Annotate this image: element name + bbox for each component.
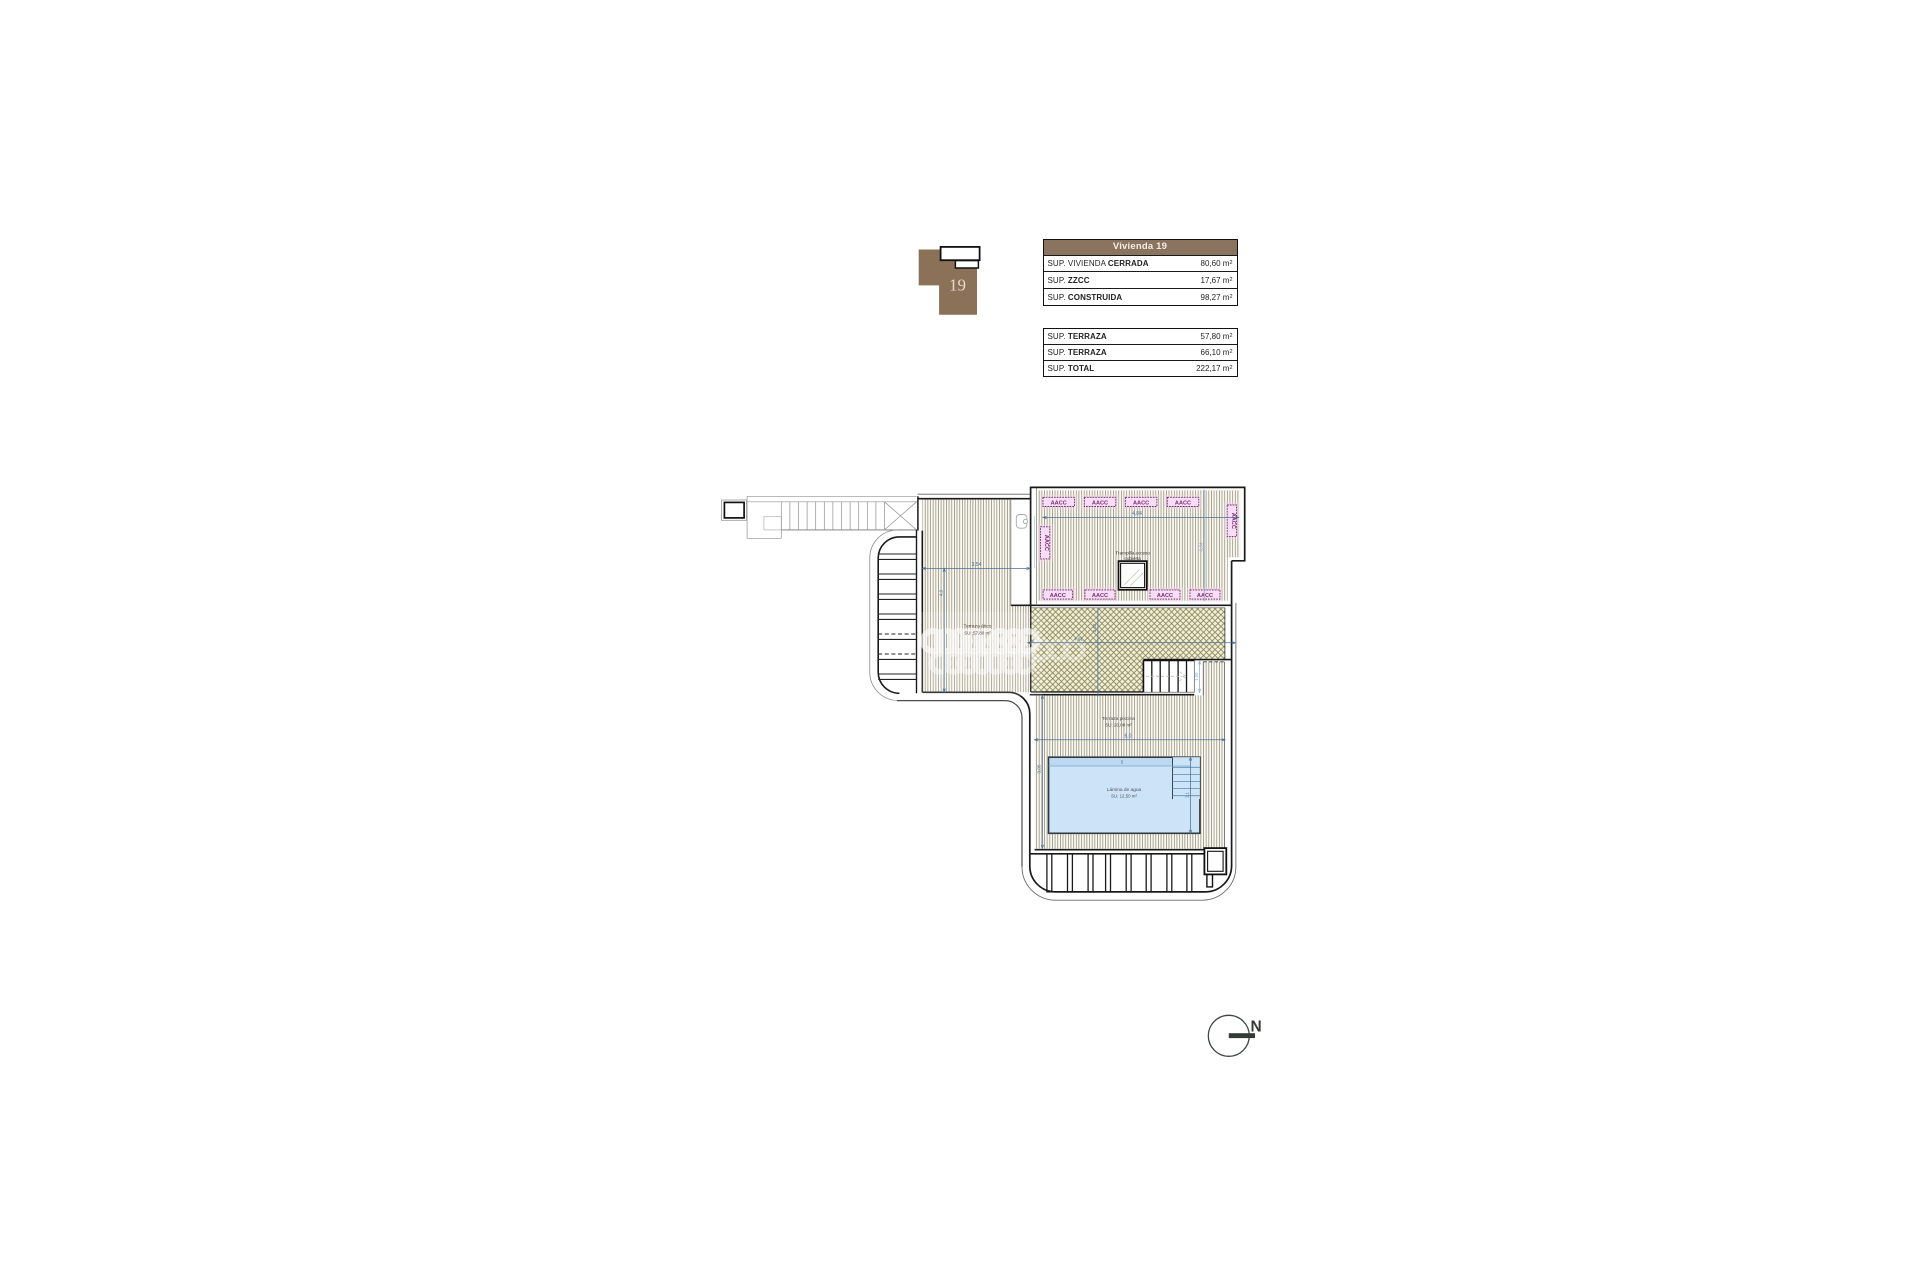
svg-text:AACC: AACC	[1051, 501, 1067, 507]
svg-text:Terraza piscina: Terraza piscina	[1102, 716, 1135, 722]
svg-text:6,0: 6,0	[1125, 733, 1132, 739]
svg-text:AACC: AACC	[1175, 501, 1191, 507]
svg-text:AACC: AACC	[1092, 501, 1108, 507]
svg-text:3,54: 3,54	[972, 562, 982, 568]
svg-text:cubierta: cubierta	[1125, 556, 1142, 561]
svg-text:Trampilla acceso: Trampilla acceso	[1115, 550, 1150, 555]
svg-text:3,05: 3,05	[1037, 764, 1042, 773]
svg-text:AACC: AACC	[1157, 593, 1173, 599]
svg-text:4,84: 4,84	[1132, 511, 1142, 517]
svg-text:AACC: AACC	[1050, 593, 1066, 599]
svg-text:1,00: 1,00	[1194, 672, 1199, 681]
svg-text:SU: 57,80 m²: SU: 57,80 m²	[964, 630, 991, 635]
svg-text:4,61: 4,61	[1074, 636, 1083, 641]
svg-text:AACC: AACC	[1043, 535, 1049, 551]
svg-text:6,04: 6,04	[1199, 542, 1204, 551]
svg-text:2,1: 2,1	[1185, 791, 1190, 797]
svg-text:N: N	[1251, 1019, 1262, 1036]
svg-text:Lámina de agua: Lámina de agua	[1107, 787, 1142, 793]
svg-text:4,9: 4,9	[938, 589, 943, 596]
svg-text:3,02: 3,02	[1092, 623, 1097, 632]
svg-text:AACC: AACC	[1092, 593, 1108, 599]
svg-text:AACC: AACC	[1133, 501, 1149, 507]
svg-text:Terraza ático: Terraza ático	[964, 623, 992, 629]
svg-text:AACC: AACC	[1197, 593, 1213, 599]
svg-text:SU: 20,00 m²: SU: 20,00 m²	[1105, 723, 1132, 728]
svg-text:SU: 12,50 m²: SU: 12,50 m²	[1111, 794, 1137, 799]
svg-text:AACC: AACC	[1230, 513, 1236, 529]
